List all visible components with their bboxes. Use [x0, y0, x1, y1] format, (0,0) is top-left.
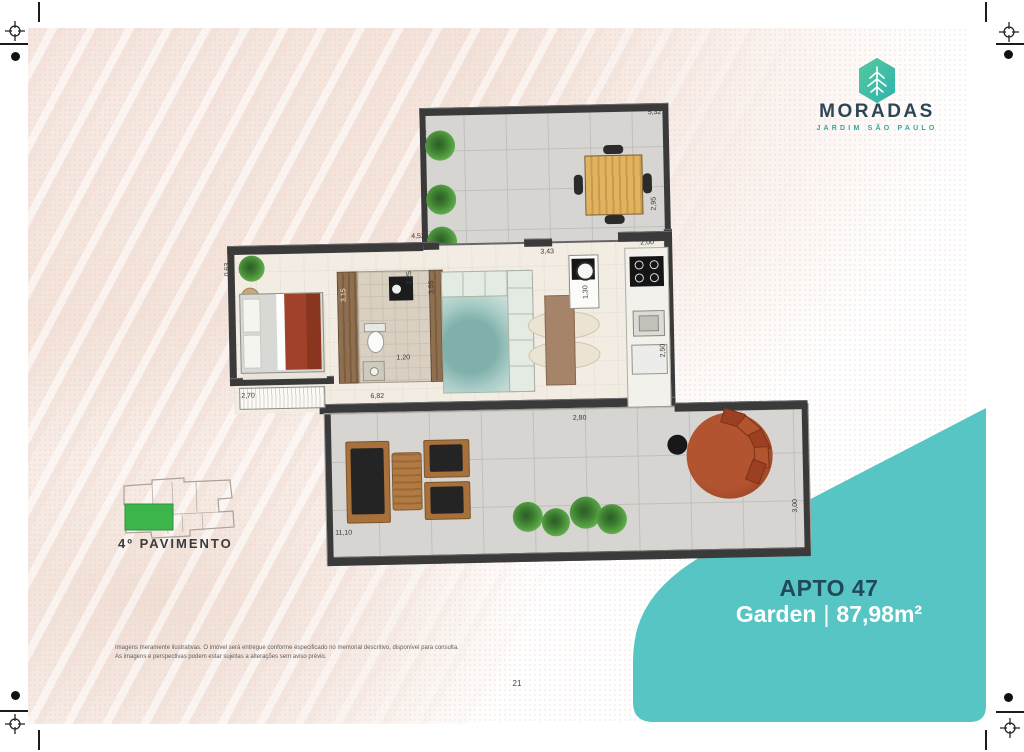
unit-number: APTO 47	[729, 575, 929, 602]
daybed-cushion	[745, 459, 767, 485]
dim-label: 1,30	[582, 285, 589, 299]
page-number: 21	[500, 679, 534, 688]
terrace-chair	[603, 145, 623, 154]
bed-blanket	[284, 293, 322, 370]
dim-label: 2,25	[406, 271, 413, 285]
building-key-plan	[112, 472, 252, 544]
wall	[325, 414, 334, 566]
side-table	[667, 435, 687, 455]
chair-cushion	[429, 444, 463, 472]
sink-basin-icon	[639, 315, 659, 331]
plant-icon	[425, 130, 456, 161]
dim-label: 2,95	[651, 197, 658, 211]
outdoor-sofa	[345, 441, 391, 524]
dim-label: 3,00	[792, 499, 799, 513]
floor-plan: 5,32 2,49 2,95 6,82 4,52 0,63 2,70	[223, 94, 818, 571]
kitchen-counter	[624, 247, 671, 408]
unit-type-area: Garden|87,98m²	[679, 601, 979, 628]
outdoor-armchair	[423, 439, 470, 478]
dim-label: 3,55	[428, 280, 435, 294]
garden-floor: 2,80 11,10 3,00	[324, 403, 812, 566]
dim-label: 2,80	[573, 415, 587, 422]
unit-area: 87,98m²	[836, 601, 922, 627]
burner-icon	[650, 273, 659, 282]
dim-label: 2,49	[421, 130, 428, 144]
wall	[802, 404, 811, 556]
outdoor-armchair	[424, 481, 471, 520]
wall	[423, 242, 439, 250]
wall	[662, 103, 671, 244]
round-daybed	[686, 412, 774, 500]
brand-subtitle: JARDIM SÃO PAULO	[812, 125, 942, 132]
dim-label: 2,70	[241, 393, 255, 400]
pillow	[243, 334, 262, 368]
shower-head-icon	[392, 284, 401, 293]
sofa-cushions	[350, 448, 384, 515]
dim-label: 0,63	[224, 263, 231, 277]
dim-label: 2,00	[630, 239, 664, 247]
separator: |	[816, 601, 836, 627]
bathroom-sink	[363, 361, 385, 381]
dim-label: 6,82	[357, 393, 397, 401]
burner-icon	[635, 273, 644, 282]
pillow	[242, 298, 261, 332]
disclaimer: Imagens meramente ilustrativas. O imóvel…	[115, 644, 475, 662]
bed	[239, 292, 325, 374]
dim-label: 5,32	[621, 109, 661, 117]
disclaimer-line2: As imagens e perspectivas podem estar su…	[115, 653, 475, 662]
disclaimer-line1: Imagens meramente ilustrativas. O imóvel…	[115, 644, 475, 653]
terrace-chair	[605, 215, 625, 224]
dim-label: 11,10	[335, 530, 352, 537]
terrace-floor: 5,32 2,49 2,95	[420, 105, 670, 246]
terrace-chair	[643, 173, 652, 193]
terrace-table	[584, 154, 643, 215]
burner-icon	[635, 260, 644, 269]
terrace-chair	[574, 175, 583, 195]
sink-basin-icon	[370, 367, 379, 376]
burner-icon	[650, 260, 659, 269]
bar-counter	[568, 254, 599, 309]
dim-label: 3,43	[540, 248, 554, 255]
dim-label: 1,20	[396, 354, 410, 361]
dim-label: 3,15	[340, 288, 347, 302]
wall	[524, 238, 552, 247]
chair-cushion	[430, 486, 464, 514]
brochure-page: APTO 47 Garden|87,98m² MORADAS JARDIM SÃ…	[0, 0, 1024, 752]
dim-label: 2,50	[660, 344, 667, 358]
highlighted-unit	[125, 504, 173, 530]
cooktop	[629, 256, 664, 287]
plant-icon	[513, 502, 544, 533]
unit-type: Garden	[736, 601, 817, 627]
plant-icon	[597, 504, 628, 535]
outdoor-coffee-table	[391, 452, 422, 511]
floor-key-label: 4º PAVIMENTO	[118, 536, 233, 551]
brand-name: MORADAS	[812, 101, 942, 123]
dim-label: 4,52	[396, 233, 440, 241]
wall	[675, 400, 808, 412]
kitchen-sink	[633, 310, 666, 337]
plant-icon	[426, 184, 457, 215]
plant-icon	[542, 508, 571, 537]
moradas-leaf-logo-icon	[857, 58, 897, 104]
